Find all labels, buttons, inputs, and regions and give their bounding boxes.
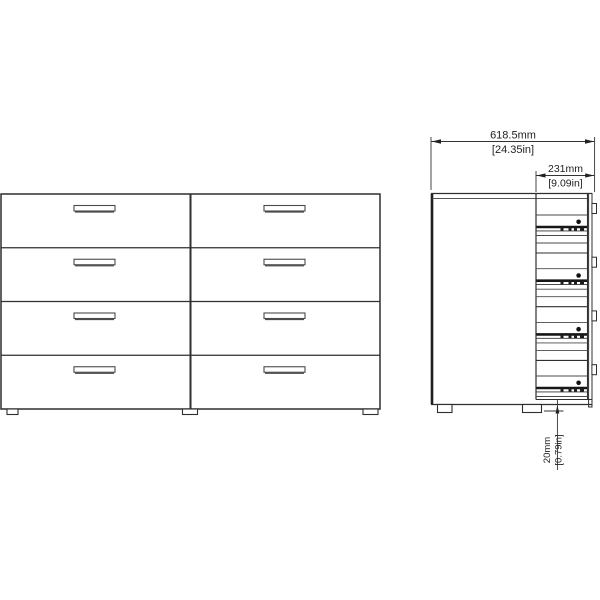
drawer-handle	[264, 259, 305, 265]
slide-roller	[574, 335, 577, 338]
dimension-clearance-inches: [0.79in]	[554, 434, 565, 465]
slide-roller	[580, 281, 584, 284]
slide-roller	[569, 281, 572, 284]
back-tab	[592, 365, 597, 375]
slide-roller	[561, 388, 564, 391]
slide-pin	[576, 220, 581, 225]
front-foot-left	[7, 409, 18, 415]
arrowhead-right	[585, 173, 594, 177]
arrowhead-left	[432, 139, 441, 143]
back-tab	[592, 204, 597, 214]
dimension-depth: 231mm [9.09in]	[536, 163, 594, 192]
dimension-depth-inches: [9.09in]	[548, 178, 583, 190]
dimension-width-inches: [24.35in]	[492, 144, 534, 156]
drawer-slide-1	[536, 215, 588, 243]
drawer-handle	[74, 313, 115, 319]
slide-roller	[580, 335, 584, 338]
back-tab	[592, 257, 597, 267]
side-foot-front	[438, 405, 453, 413]
drawer-slide-2	[536, 269, 588, 297]
slide-roller	[580, 388, 584, 391]
clearance-label-group: 20mm [0.79in]	[542, 434, 565, 465]
drawer-handle	[74, 367, 115, 373]
slide-roller	[574, 227, 577, 230]
drawer-handle	[264, 367, 305, 373]
dimension-clearance: 20mm [0.79in]	[542, 400, 565, 471]
slide-roller	[561, 281, 564, 284]
slide-roller	[561, 335, 564, 338]
slide-roller	[574, 281, 577, 284]
drawer-handle	[74, 206, 115, 212]
slide-roller	[580, 227, 584, 230]
slide-roller	[574, 388, 577, 391]
technical-drawing: 618.5mm [24.35in] 231mm [9.09in] 20mm [0…	[0, 0, 600, 600]
front-foot-center	[183, 409, 198, 415]
dimension-width-mm: 618.5mm	[490, 130, 536, 142]
back-tab	[592, 311, 597, 321]
slide-roller	[569, 227, 572, 230]
drawer-handle	[74, 259, 115, 265]
arrowhead-left	[537, 173, 546, 177]
slide-pin	[576, 381, 581, 386]
drawer-slide-4	[536, 376, 588, 397]
side-view	[431, 194, 597, 413]
dimension-clearance-mm: 20mm	[542, 437, 553, 463]
slide-pin	[576, 273, 581, 278]
drawer-slide-3	[536, 322, 588, 350]
slide-roller	[569, 335, 572, 338]
technical-drawing-page: 618.5mm [24.35in] 231mm [9.09in] 20mm [0…	[0, 0, 600, 600]
front-foot-right	[363, 409, 378, 415]
front-view	[1, 194, 380, 415]
drawer-handle	[264, 313, 305, 319]
side-foot-back	[523, 405, 542, 413]
arrowhead-up	[556, 405, 560, 414]
slide-pin	[576, 327, 581, 332]
arrowhead-right	[585, 139, 594, 143]
drawer-handle	[264, 206, 305, 212]
dimension-depth-mm: 231mm	[548, 163, 583, 175]
slide-roller	[561, 227, 564, 230]
slide-roller	[569, 388, 572, 391]
